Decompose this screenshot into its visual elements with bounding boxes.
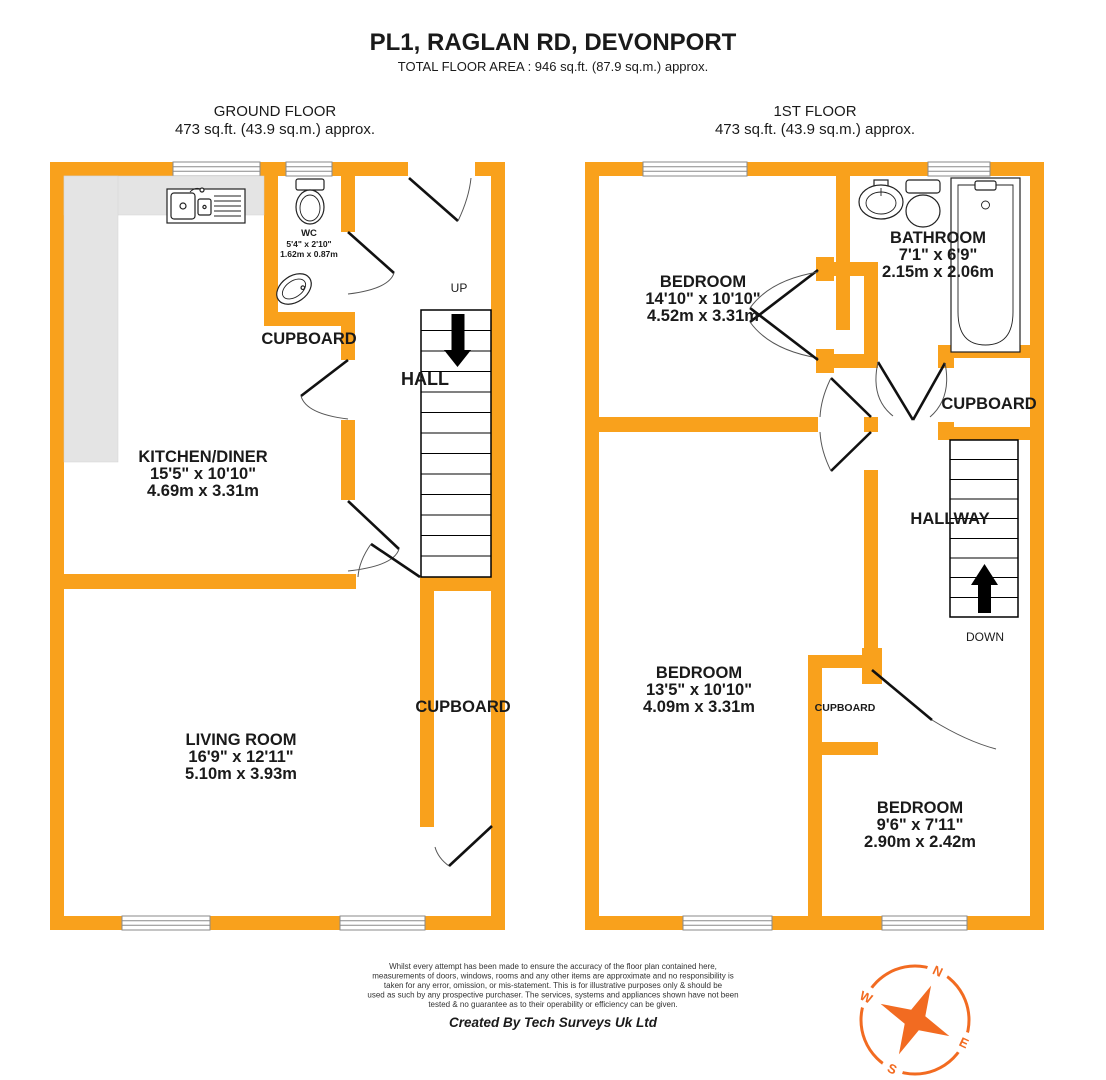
- disclaimer-line: taken for any error, omission, or mis-st…: [384, 981, 723, 990]
- window: [173, 162, 260, 176]
- credit-line: Created By Tech Surveys Uk Ltd: [449, 1015, 658, 1030]
- bedroom1-door: [820, 378, 871, 417]
- first-floor-area: 473 sq.ft. (43.9 sq.m.) approx.: [715, 121, 915, 138]
- compass-star: [881, 986, 950, 1055]
- bedroom1-dims-imperial: 14'10" x 10'10": [645, 290, 760, 308]
- wc-door: [348, 232, 394, 294]
- living-room-label: LIVING ROOM: [186, 731, 297, 749]
- hallway-label: HALLWAY: [910, 510, 989, 528]
- kitchen-dims-metric: 4.69m x 3.31m: [147, 482, 259, 500]
- wardrobe-door-bottom: [750, 272, 818, 360]
- first-stairs: [950, 440, 1018, 617]
- wc-dims-metric: 1.62m x 0.87m: [280, 249, 338, 259]
- window: [882, 916, 967, 930]
- window: [643, 162, 747, 176]
- ground-floor-area: 473 sq.ft. (43.9 sq.m.) approx.: [175, 121, 375, 138]
- wc-label: WC: [301, 228, 317, 239]
- cupboard-wc-label: CUPBOARD: [261, 330, 356, 348]
- wc-dims-imperial: 5'4" x 2'10": [286, 239, 331, 249]
- stairs-down-label: DOWN: [966, 630, 1004, 644]
- bedroom2-door: [820, 432, 871, 471]
- wardrobe-door-top: [750, 270, 818, 358]
- window: [286, 162, 332, 176]
- bedroom2-dims-imperial: 13'5" x 10'10": [646, 681, 752, 699]
- floorplan-page: PL1, RAGLAN RD, DEVONPORT TOTAL FLOOR AR…: [0, 0, 1106, 1080]
- bathroom-toilet-icon: [906, 180, 940, 227]
- bedroom3-dims-imperial: 9'6" x 7'11": [877, 816, 964, 834]
- cupboard-door: [301, 360, 348, 419]
- window: [683, 916, 772, 930]
- first-floor-label: 1ST FLOOR: [773, 103, 856, 120]
- window: [340, 916, 425, 930]
- disclaimer-line: tested & no guarantee as to their operab…: [428, 1000, 677, 1009]
- disclaimer-line: Whilst every attempt has been made to en…: [389, 962, 717, 971]
- cupboard-small-label: CUPBOARD: [815, 702, 876, 714]
- ground-floor-plan: WC 5'4" x 2'10" 1.62m x 0.87m CUPBOARD U…: [50, 162, 511, 930]
- bathroom-door: [876, 362, 913, 420]
- bedroom1-dims-metric: 4.52m x 3.31m: [647, 307, 759, 325]
- disclaimer-line: used as such by any prospective purchase…: [367, 991, 738, 1000]
- bedroom2-dims-metric: 4.09m x 3.31m: [643, 698, 755, 716]
- living-dims-imperial: 16'9" x 12'11": [188, 748, 293, 766]
- bedroom3-label: BEDROOM: [877, 799, 963, 817]
- page-title: PL1, RAGLAN RD, DEVONPORT: [370, 29, 737, 56]
- living-dims-metric: 5.10m x 3.93m: [185, 765, 297, 783]
- hall-label: HALL: [401, 369, 449, 389]
- cupboard-label: CUPBOARD: [941, 395, 1036, 413]
- stairs-up-label: UP: [451, 281, 468, 295]
- ground-stairs: [421, 310, 491, 577]
- footer-disclaimer: Whilst every attempt has been made to en…: [367, 962, 738, 1030]
- first-floor-plan: BEDROOM 14'10" x 10'10" 4.52m x 3.31m BA…: [585, 162, 1044, 930]
- kitchen-dims-imperial: 15'5" x 10'10": [150, 465, 256, 483]
- entrance-door: [409, 178, 471, 221]
- cupboard-stairs-label: CUPBOARD: [415, 698, 510, 716]
- disclaimer-line: measurements of doors, windows, rooms an…: [372, 972, 734, 981]
- bathroom-dims-imperial: 7'1" x 6'9": [899, 246, 978, 264]
- bedroom1-label: BEDROOM: [660, 273, 746, 291]
- kitchen-sink-icon: [167, 188, 245, 223]
- bathroom-basin-icon: [859, 180, 903, 219]
- kitchen-counter-left: [64, 176, 118, 462]
- bedroom3-dims-metric: 2.90m x 2.42m: [864, 833, 976, 851]
- bedroom3-door: [872, 670, 996, 749]
- bedroom2-label: BEDROOM: [656, 664, 742, 682]
- bathroom-label: BATHROOM: [890, 229, 986, 247]
- window: [928, 162, 990, 176]
- kitchen-label: KITCHEN/DINER: [138, 448, 267, 466]
- total-area-subtitle: TOTAL FLOOR AREA : 946 sq.ft. (87.9 sq.m…: [398, 59, 708, 74]
- bathroom-dims-metric: 2.15m x 2.06m: [882, 263, 994, 281]
- kitchen-door: [348, 501, 399, 571]
- compass-rose-icon: N E S W: [855, 960, 975, 1080]
- toilet-icon: [296, 179, 324, 224]
- window: [122, 916, 210, 930]
- floorplan-drawing: PL1, RAGLAN RD, DEVONPORT TOTAL FLOOR AR…: [0, 0, 1106, 1080]
- stairs-cupboard-door: [435, 826, 492, 866]
- ground-floor-label: GROUND FLOOR: [214, 103, 337, 120]
